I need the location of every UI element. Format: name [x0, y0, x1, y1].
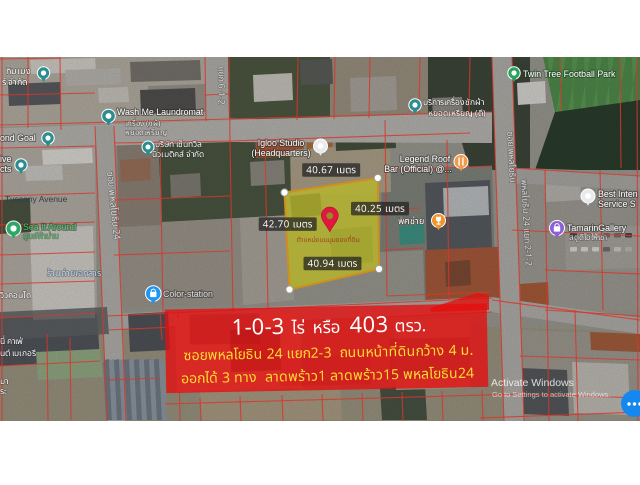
svg-text:ive: ive	[0, 154, 12, 164]
svg-text:Twin Tree Football Park: Twin Tree Football Park	[523, 69, 616, 79]
svg-text:Igloo Studio: Igloo Studio	[258, 138, 305, 148]
svg-text:TamarinGallery: TamarinGallery	[567, 223, 627, 233]
svg-text:Wash Me Laundromat: Wash Me Laundromat	[117, 107, 204, 117]
svg-text:ond Goal: ond Goal	[0, 133, 36, 143]
svg-text:Go to Settings to activate Win: Go to Settings to activate Windows.	[492, 390, 610, 399]
svg-text:Legend Roof: Legend Roof	[400, 154, 451, 164]
svg-text:(Headquarters): (Headquarters)	[251, 148, 310, 158]
svg-text:Activate Windows: Activate Windows	[491, 377, 574, 389]
svg-text:cts: cts	[0, 164, 12, 174]
svg-text:Service S: Service S	[598, 199, 636, 209]
svg-text:Tuscany Avenue: Tuscany Avenue	[5, 194, 68, 204]
svg-text:Bar (Official) @...: Bar (Official) @...	[384, 164, 451, 174]
svg-text:Color-station: Color-station	[163, 289, 213, 299]
svg-text:Sea It Around: Sea It Around	[23, 222, 76, 232]
svg-text:Best Inten: Best Inten	[598, 189, 638, 199]
